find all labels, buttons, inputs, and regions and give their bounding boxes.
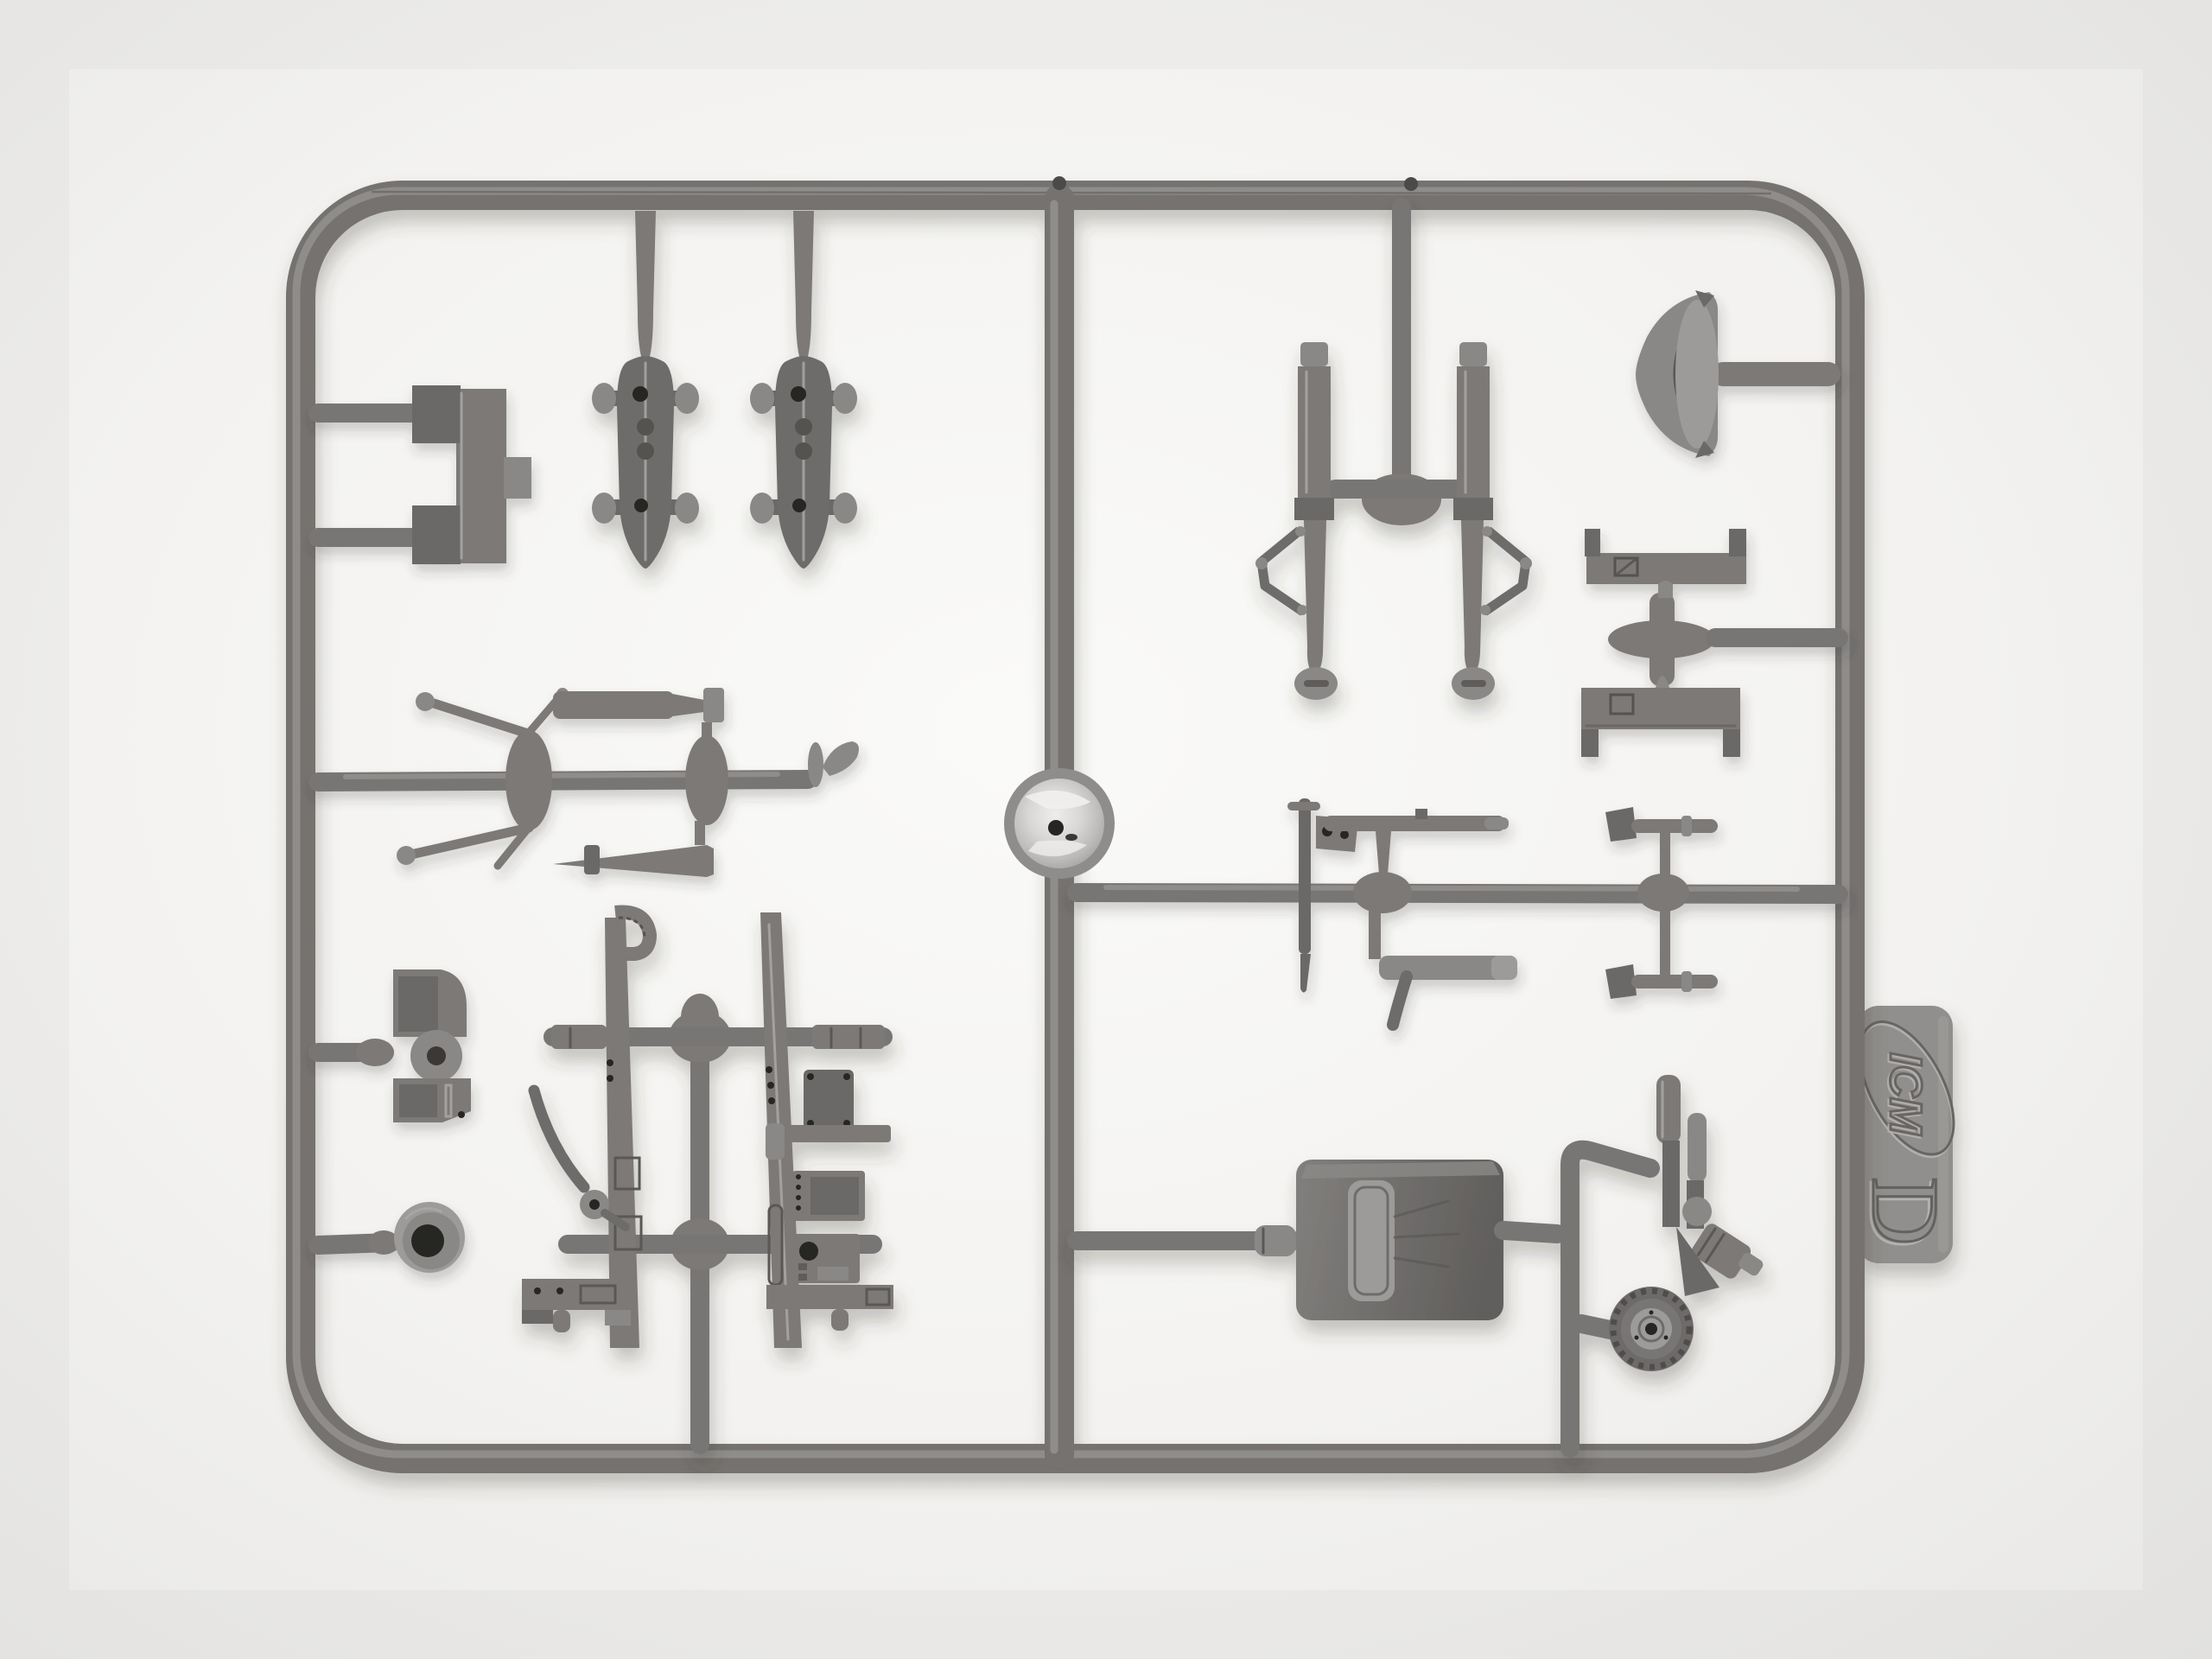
hook-flange bbox=[808, 742, 823, 787]
box-chip bbox=[798, 1274, 807, 1281]
strut-cylinder bbox=[1298, 366, 1331, 498]
channel-foot bbox=[1729, 529, 1746, 556]
hub-bolt bbox=[1649, 1311, 1654, 1315]
float-lug bbox=[675, 383, 699, 414]
scissor-hinge bbox=[1480, 605, 1491, 615]
pitot-rod bbox=[1631, 819, 1718, 833]
hub-bolt bbox=[1635, 1336, 1639, 1340]
column-rod bbox=[1299, 798, 1311, 954]
gun-muzzle bbox=[1484, 817, 1509, 829]
seat-body bbox=[1296, 1160, 1503, 1320]
scissor-hinge bbox=[1255, 557, 1268, 569]
float-lug bbox=[833, 383, 857, 414]
u-bracket-block-bottom bbox=[412, 505, 461, 564]
pitot-stem bbox=[1660, 902, 1670, 980]
box-dot bbox=[796, 1185, 801, 1190]
strut-cap bbox=[1459, 342, 1487, 366]
channel-nub bbox=[1658, 581, 1673, 598]
strut-foot-slot bbox=[1461, 680, 1486, 687]
float-filler-hole bbox=[791, 386, 806, 402]
frame-rivet bbox=[766, 1066, 772, 1073]
float-lug bbox=[833, 493, 857, 524]
frame-console bbox=[766, 1123, 785, 1160]
box-screw bbox=[843, 1073, 850, 1080]
cone-collar bbox=[584, 845, 600, 874]
cross-fitting bbox=[812, 1025, 885, 1049]
stick-ball-grip bbox=[416, 692, 435, 711]
cylinder-tall bbox=[1656, 1075, 1681, 1144]
scissor-hinge bbox=[1520, 557, 1532, 569]
icm-logo-text: ICM bbox=[1880, 1052, 1930, 1136]
frame-peg bbox=[831, 1309, 849, 1331]
float-lug bbox=[592, 383, 616, 414]
box-dot bbox=[796, 1195, 801, 1200]
axle-hole bbox=[1645, 1323, 1657, 1335]
box-chip bbox=[798, 1263, 807, 1270]
box-panel bbox=[810, 1177, 859, 1215]
runner-cross-h bbox=[1608, 620, 1715, 658]
strut-cap bbox=[1300, 342, 1328, 366]
channel-bar bbox=[1586, 553, 1746, 584]
pitot-stem bbox=[1660, 833, 1670, 883]
strut-column bbox=[1662, 1141, 1680, 1227]
runner bbox=[1077, 893, 1839, 894]
float-port bbox=[637, 442, 654, 460]
cone-stem bbox=[695, 821, 705, 845]
float-lug bbox=[675, 493, 699, 524]
runner-bulge bbox=[685, 735, 728, 825]
float-filler-hole bbox=[634, 499, 648, 512]
frame-rivet bbox=[768, 1097, 775, 1104]
float-filler-hole bbox=[632, 386, 648, 402]
box-chip bbox=[817, 1267, 849, 1281]
strut-collar bbox=[1453, 498, 1493, 520]
strut-leg bbox=[1461, 520, 1484, 672]
hub-bolt bbox=[1664, 1336, 1669, 1340]
frame-rivet bbox=[607, 1075, 613, 1082]
float-port bbox=[795, 418, 812, 435]
float-lug bbox=[750, 493, 774, 524]
float-port bbox=[637, 418, 654, 435]
gate-hub-hole bbox=[1048, 820, 1064, 836]
lever-pivot-hole bbox=[589, 1199, 600, 1210]
scissor-hinge bbox=[1482, 526, 1492, 537]
bracket-plate-panel bbox=[399, 1084, 437, 1117]
runner-highlight bbox=[1106, 887, 1797, 889]
channel-foot bbox=[1585, 529, 1600, 556]
pivot-disc bbox=[1682, 1197, 1712, 1226]
float-filler-hole bbox=[792, 499, 806, 512]
pitot-collar bbox=[1681, 816, 1692, 836]
stick-ball-grip bbox=[397, 846, 416, 865]
box-dot bbox=[796, 1205, 801, 1211]
column-crossbar bbox=[1287, 802, 1320, 810]
frame-rivet bbox=[556, 1287, 563, 1294]
channel-bar bbox=[1581, 688, 1740, 729]
box-hole bbox=[799, 1242, 818, 1261]
u-bracket-block-top bbox=[412, 385, 461, 443]
frame-letter-text: D bbox=[1853, 1177, 1958, 1245]
runner-bulge bbox=[505, 730, 552, 830]
bracket-fin-panel bbox=[398, 976, 438, 1032]
float-lug bbox=[592, 493, 616, 524]
gate-hub-pit bbox=[1065, 834, 1077, 841]
gun-sight bbox=[1415, 809, 1427, 819]
strut-collar bbox=[1294, 498, 1334, 520]
frame-peg bbox=[553, 1310, 570, 1332]
cross-fitting bbox=[551, 1025, 607, 1049]
gate-hub: Bright injection gate hub on central run… bbox=[1004, 768, 1115, 879]
shelf-bracket bbox=[789, 1125, 891, 1142]
crescent-dome bbox=[1675, 300, 1719, 448]
scissor-hinge bbox=[1295, 526, 1306, 537]
blade-stem bbox=[702, 722, 712, 743]
strut-foot-slot bbox=[1304, 680, 1329, 687]
bracket-hole bbox=[1340, 830, 1349, 839]
runner-coupler bbox=[1255, 1225, 1296, 1256]
strut-leg bbox=[1304, 520, 1326, 672]
seat-stub bbox=[1503, 1230, 1557, 1234]
pitot-collar bbox=[1681, 971, 1692, 992]
exhaust-tip bbox=[1491, 956, 1517, 980]
frame-rivet bbox=[534, 1287, 541, 1294]
channel-foot bbox=[1581, 729, 1599, 757]
runner bbox=[1711, 362, 1840, 386]
frame-letter: D D bbox=[1850, 1177, 1958, 1248]
float-port bbox=[795, 442, 812, 460]
sprue-photo: Embossed ICM logo tab with frame letter … bbox=[0, 0, 2212, 1659]
gate-nub-icon bbox=[1052, 176, 1066, 190]
runner bbox=[318, 779, 808, 782]
blade-bar bbox=[553, 691, 674, 719]
box-dot bbox=[796, 1174, 801, 1179]
blade-nub bbox=[703, 688, 724, 722]
scissor-hinge bbox=[1297, 605, 1307, 615]
float-lug bbox=[750, 383, 774, 414]
pitot-rod bbox=[1631, 975, 1718, 988]
frame-rivet bbox=[767, 1082, 774, 1089]
channel-foot bbox=[1723, 729, 1740, 757]
exhaust-stem bbox=[1369, 906, 1381, 959]
frame-rivet bbox=[607, 1059, 613, 1066]
gun-barrel bbox=[1324, 816, 1505, 831]
grommet-hole bbox=[411, 1224, 444, 1257]
runner-bulge bbox=[1353, 872, 1412, 913]
u-bracket-plate bbox=[456, 389, 506, 563]
cylinder-short bbox=[1688, 1113, 1707, 1182]
gate-nub-icon bbox=[1404, 177, 1418, 191]
u-bracket-tab bbox=[504, 457, 531, 499]
bracket-rivet bbox=[458, 1111, 465, 1118]
frame-tab bbox=[605, 1310, 631, 1325]
box-screw bbox=[807, 1073, 814, 1080]
frame-foot-step bbox=[522, 1310, 553, 1324]
strut-cylinder bbox=[1457, 366, 1490, 498]
bracket-boss-hole bbox=[427, 1046, 446, 1065]
runner-bulge bbox=[356, 1039, 394, 1066]
